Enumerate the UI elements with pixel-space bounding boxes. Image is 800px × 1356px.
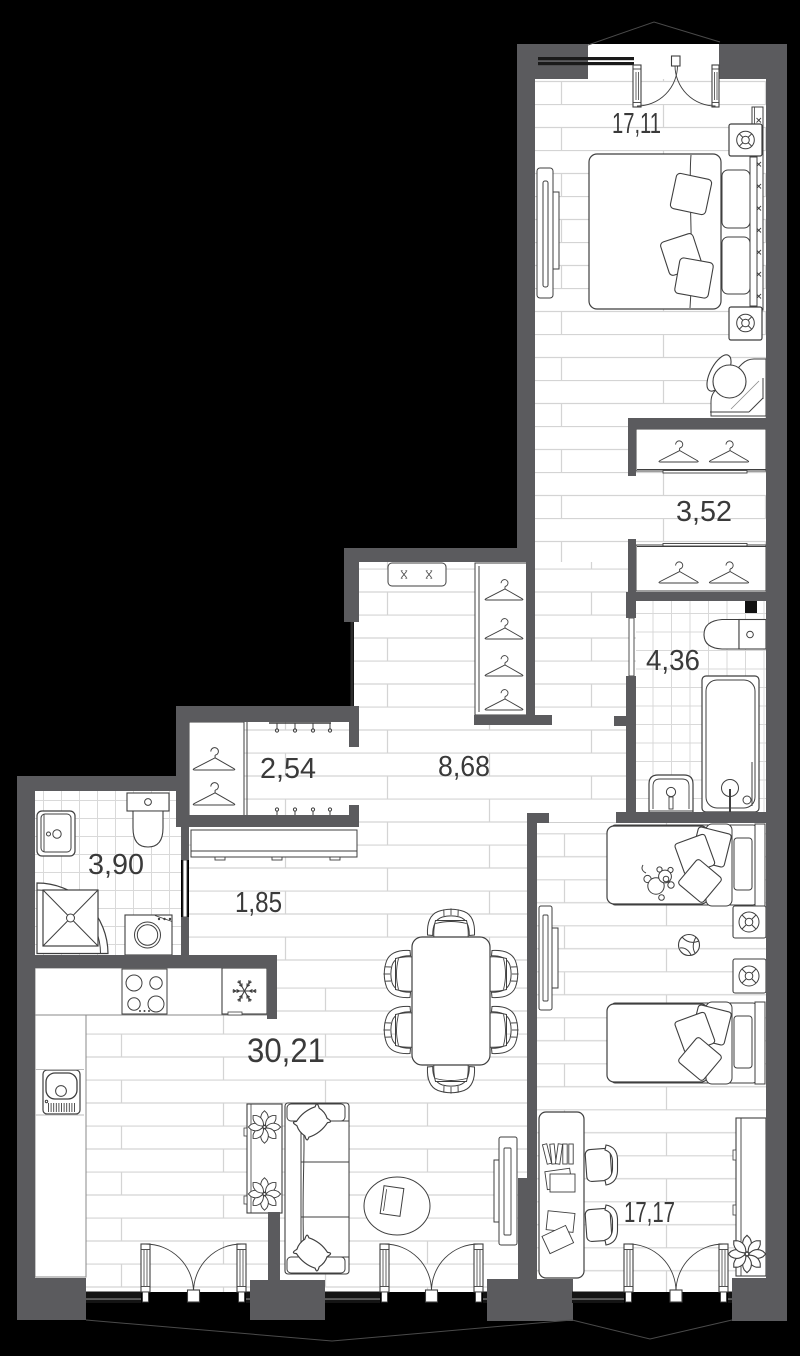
svg-text:17,11: 17,11 — [612, 108, 661, 140]
svg-text:4,36: 4,36 — [646, 645, 700, 677]
svg-text:3,52: 3,52 — [676, 496, 732, 528]
svg-text:2,54: 2,54 — [260, 753, 316, 785]
svg-text:17,17: 17,17 — [624, 1197, 675, 1229]
svg-text:1,85: 1,85 — [235, 887, 282, 919]
svg-text:3,90: 3,90 — [88, 849, 144, 881]
svg-text:30,21: 30,21 — [247, 1032, 325, 1070]
svg-text:8,68: 8,68 — [438, 751, 490, 783]
